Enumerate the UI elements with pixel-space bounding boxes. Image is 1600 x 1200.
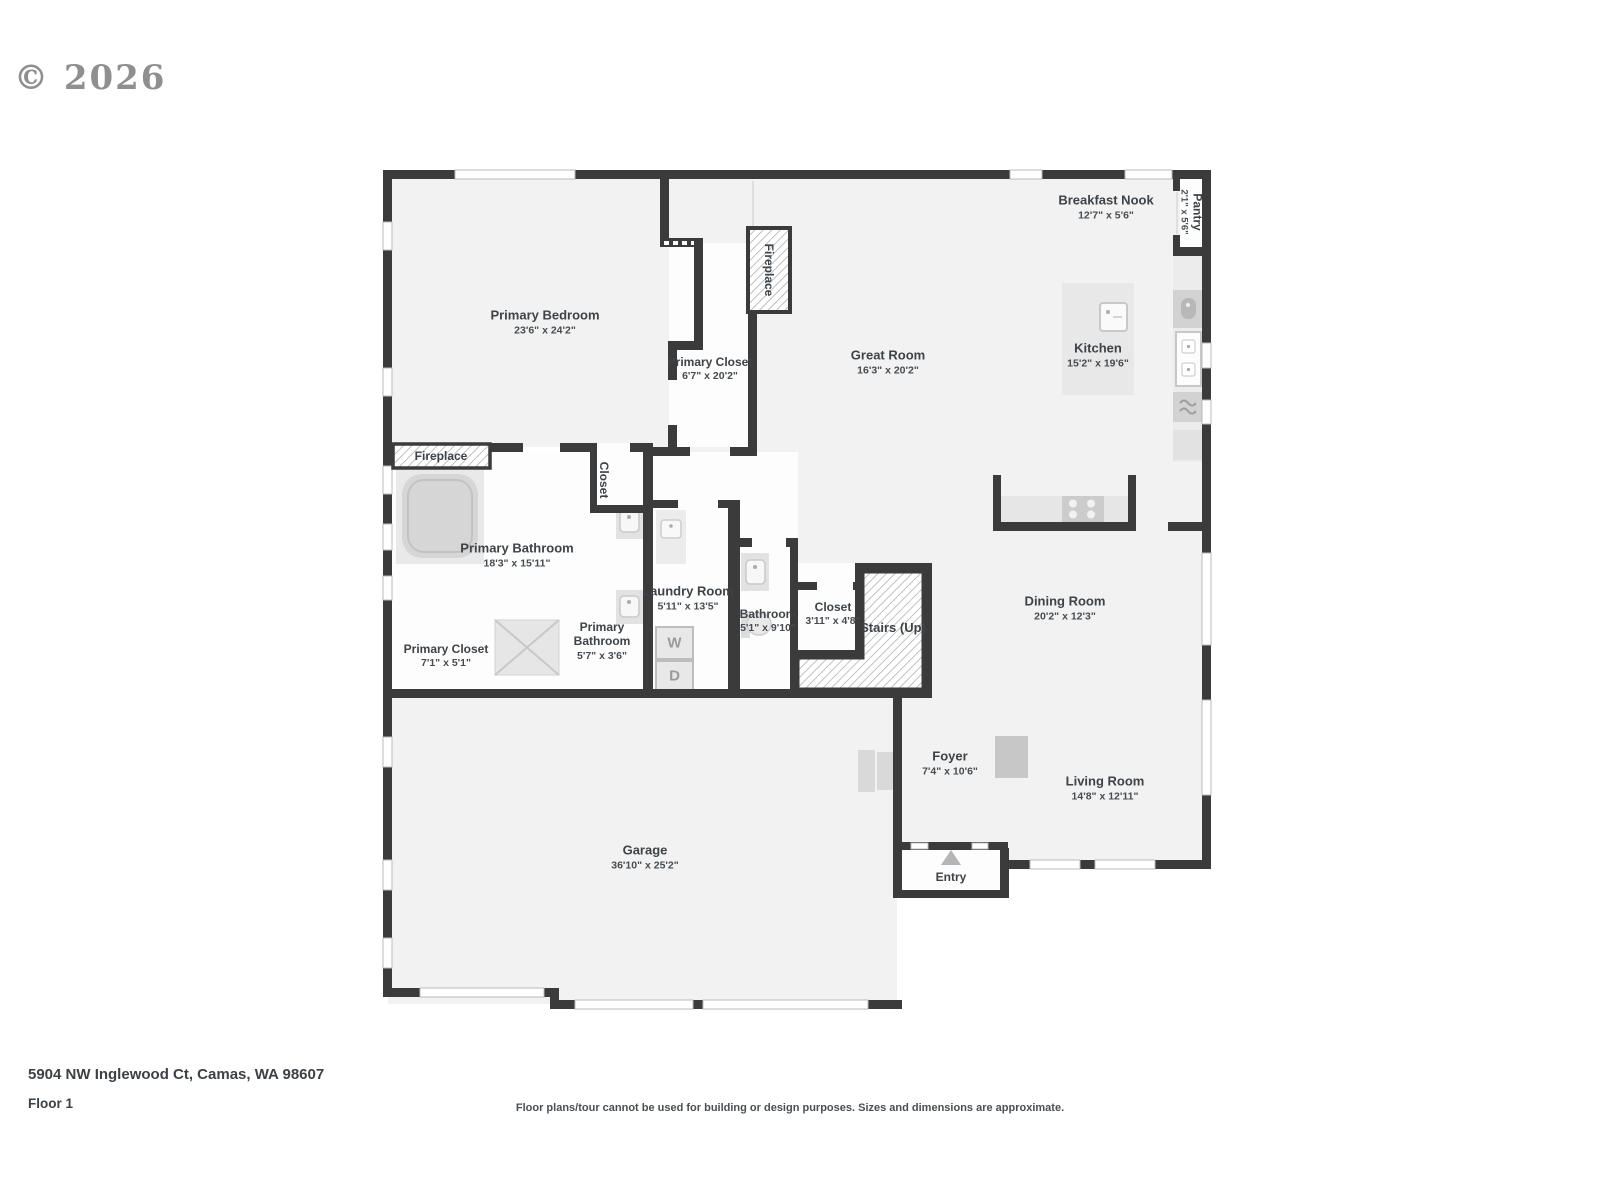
kitchen-island	[1062, 283, 1134, 395]
room-label-primary-closet: Primary Closet 6'7" x 20'2"	[668, 355, 753, 383]
laundry-counter	[656, 510, 686, 564]
range-icon	[1173, 392, 1202, 422]
room-label-bathroom: Bathroom 5'1" x 9'10"	[740, 607, 797, 635]
room-label-primary-bedroom: Primary Bedroom 23'6" x 24'2"	[490, 307, 599, 336]
floor-label: Floor 1	[28, 1096, 73, 1111]
shower	[495, 620, 559, 675]
label-washer: W	[667, 635, 681, 652]
room-label-closet: Closet 3'11" x 4'8"	[805, 600, 860, 628]
floor-plan-drawing	[0, 0, 1600, 1200]
room-label-primary-bathroom: Primary Bathroom 18'3" x 15'11"	[460, 540, 573, 569]
address-text: 5904 NW Inglewood Ct, Camas, WA 98607	[28, 1066, 324, 1083]
kitchen-counter	[1173, 256, 1202, 462]
garage-utility	[858, 750, 875, 792]
label-fireplace-great-room: Fireplace	[762, 244, 776, 297]
room-label-kitchen: Kitchen 15'2" x 19'6"	[1067, 340, 1129, 369]
label-dryer: D	[669, 668, 680, 685]
copyright-watermark: © 2026	[14, 58, 166, 98]
label-entry: Entry	[936, 870, 967, 884]
double-oven-icon	[1176, 332, 1201, 386]
room-label-primary-closet-2: Primary Closet 7'1" x 5'1"	[404, 642, 489, 670]
refrigerator-icon	[1173, 290, 1202, 328]
room-label-primary-bathroom-2: Primary Bathroom 5'7" x 3'6"	[566, 620, 638, 662]
label-hall-closet: Closet	[597, 462, 611, 499]
room-label-living-room: Living Room 14'8" x 12'11"	[1066, 773, 1145, 802]
disclaimer-text: Floor plans/tour cannot be used for buil…	[516, 1102, 1064, 1114]
room-label-pantry: Pantry 2'1" x 5'6"	[1178, 189, 1205, 234]
room-label-great-room: Great Room 16'3" x 20'2"	[851, 347, 925, 376]
label-stairs: Stairs (Up)	[860, 620, 926, 636]
cooktop-counter	[1001, 496, 1128, 522]
room-label-foyer: Foyer 7'4" x 10'6"	[922, 748, 978, 777]
bathroom-sink	[741, 553, 769, 591]
garage-utility	[877, 752, 893, 790]
floor-plan-canvas: © 2026 Primary Bedroom 23'6" x 24'2" Pri…	[0, 0, 1600, 1200]
label-fireplace-bathroom: Fireplace	[415, 449, 468, 463]
foyer-closet-block	[995, 736, 1028, 778]
room-label-garage: Garage 36'10" x 25'2"	[611, 842, 679, 871]
room-label-laundry-room: Laundry Room 5'11" x 13'5"	[642, 583, 734, 612]
room-label-dining-room: Dining Room 20'2" x 12'3"	[1025, 593, 1106, 622]
room-label-breakfast-nook: Breakfast Nook 12'7" x 5'6"	[1058, 192, 1153, 221]
